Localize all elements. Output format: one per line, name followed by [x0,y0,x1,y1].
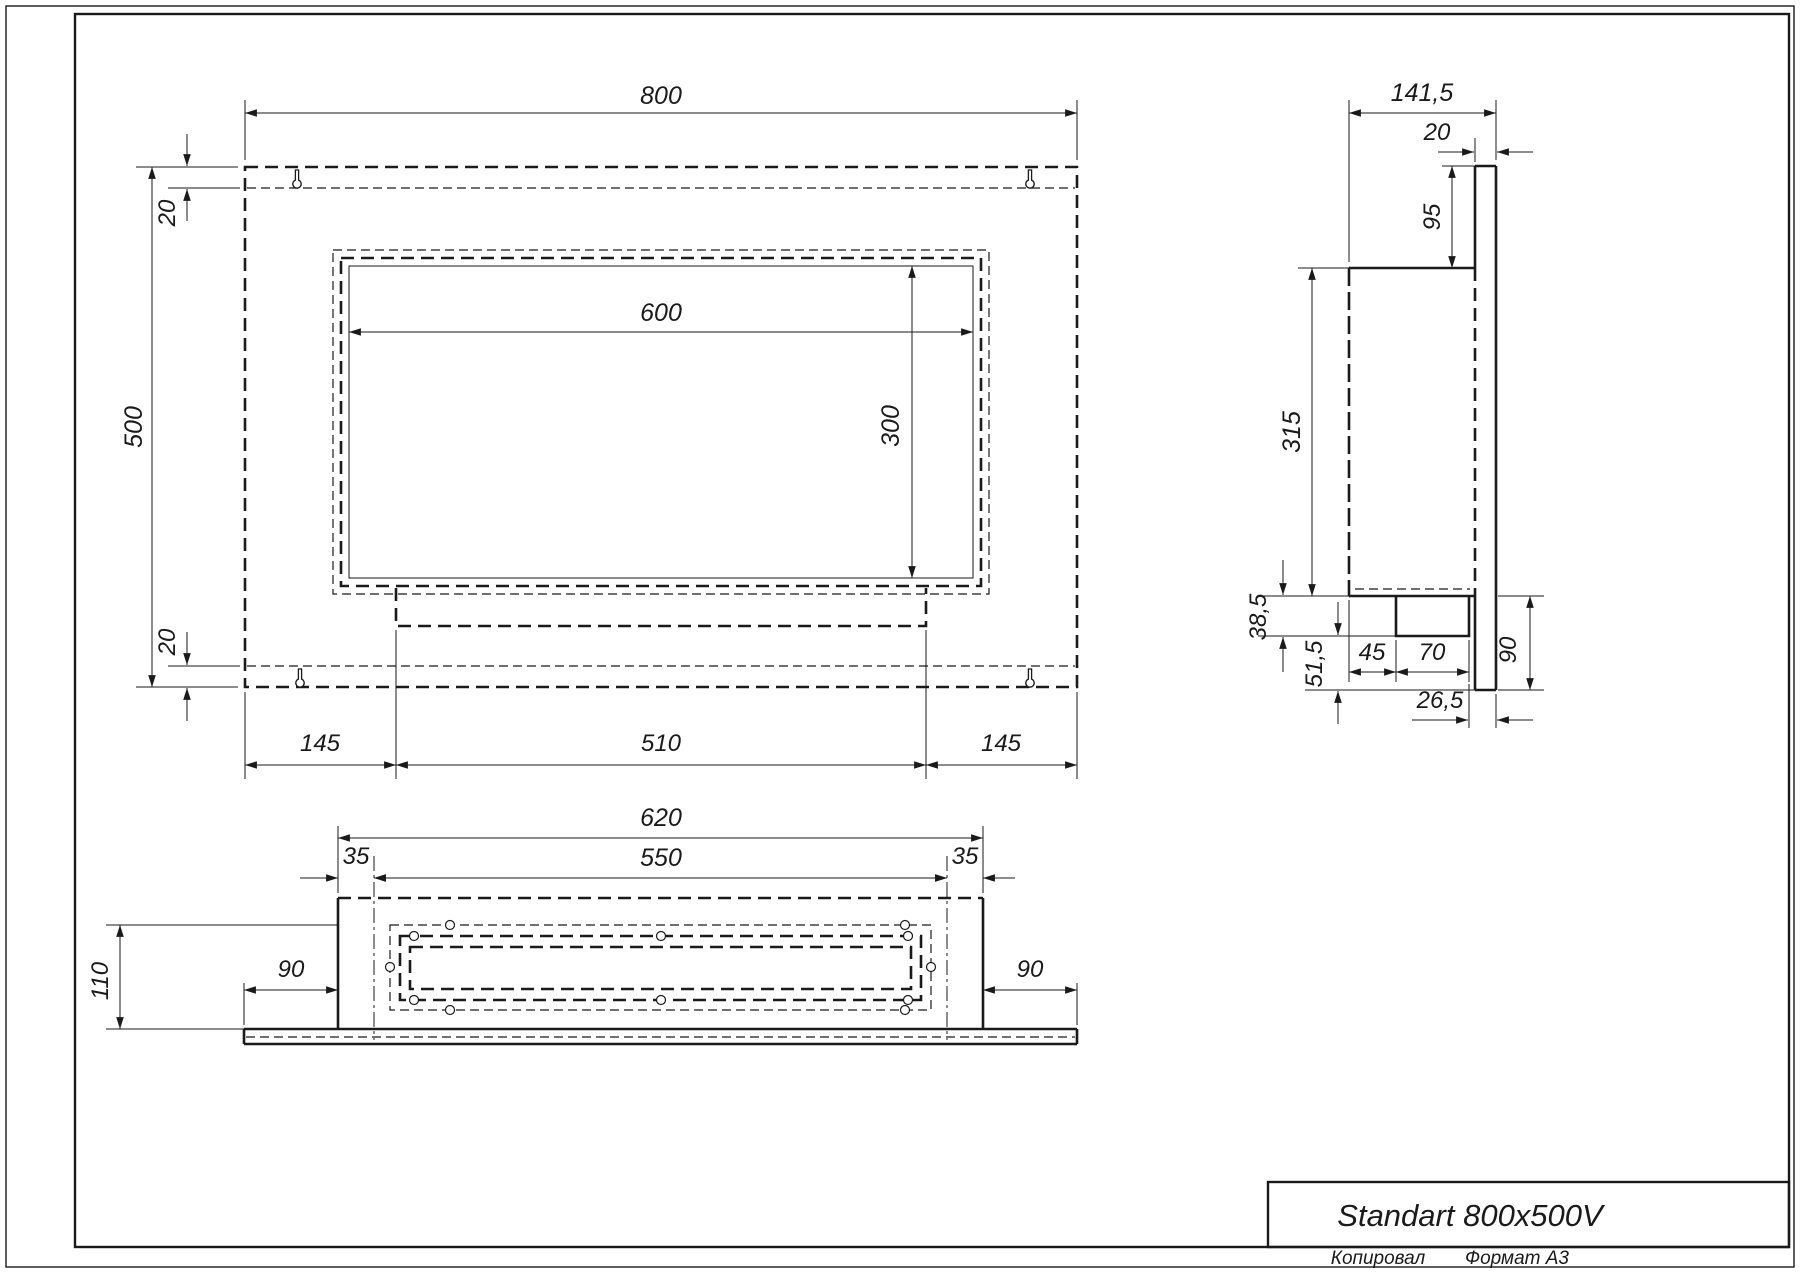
dim-label-90-right: 90 [1017,956,1044,983]
dim-bottom-wing-right: 90 [983,956,1077,1025]
keyhole-slot-icon [1026,170,1034,188]
dim-side-back-gap: 26,5 [1412,684,1533,728]
keyhole-slot-icon [1026,669,1034,687]
dim-front-top-flange: 20 [154,134,240,227]
dim-label-110: 110 [87,961,114,1000]
dim-label-20-top: 20 [154,199,181,227]
dim-label-38-5: 38,5 [1245,593,1272,640]
dim-bottom-inner-width: 550 35 35 [300,843,1015,878]
dim-side-plate-below: 90 [1495,596,1544,690]
bottom-wall-plate [244,1029,1077,1044]
dim-label-315: 315 [1278,411,1306,453]
sheet-border [6,6,1794,1267]
side-chamber-box [1349,268,1475,596]
dim-label-600: 600 [640,299,682,327]
front-outer-panel [245,167,1077,687]
dim-label-70: 70 [1419,639,1446,666]
dim-front-width: 800 [245,82,1077,160]
dim-label-550: 550 [640,844,682,872]
dim-label-620: 620 [640,804,682,832]
dim-label-95: 95 [1419,203,1446,230]
dim-label-45: 45 [1359,639,1386,666]
dim-bottom-wing-left: 90 [244,956,338,1025]
dim-label-141-5: 141,5 [1391,79,1454,107]
dim-label-510: 510 [641,730,682,757]
dim-label-90-left: 90 [278,956,305,983]
drawing-frame [75,14,1789,1247]
dim-label-300: 300 [877,405,905,447]
side-view: 141,5 20 95 315 38,5 [1245,79,1544,728]
dim-label-35-right: 35 [952,843,979,870]
sheet-footer: Копировал Формат А3 [1331,1248,1570,1269]
dim-label-26-5: 26,5 [1416,687,1464,714]
cad-canvas: 800 500 20 20 600 [0,0,1800,1273]
keyhole-slot-icon [293,170,301,188]
front-view: 800 500 20 20 600 [120,82,1077,779]
bottom-tray-outline-inner [410,947,911,989]
dim-label-plate-20: 20 [1423,119,1451,146]
keyhole-slot-icon [296,669,304,687]
dim-label-500: 500 [120,406,148,448]
dim-side-top-offset: 95 [1419,166,1475,268]
bottom-tray-outline-outer [400,936,921,1000]
dim-front-bottom-flange: 20 [154,628,240,721]
side-wall-plate [1475,166,1496,690]
title-block: Standart 800x500V [1268,1182,1789,1247]
dim-label-145-right: 145 [981,730,1022,757]
copied-label: Копировал [1331,1248,1426,1269]
dim-opening-height: 300 [877,266,912,578]
dim-label-35-left: 35 [343,843,370,870]
dim-front-bottom-split: 145 510 145 [245,630,1077,779]
dim-opening-width: 600 [349,299,973,332]
bottom-view: 620 550 35 35 110 90 [87,804,1077,1044]
dim-label-51-5: 51,5 [1301,640,1328,687]
dim-label-800: 800 [640,82,682,110]
dim-side-chamber-height: 315 [1262,268,1349,596]
dim-side-plate-thickness: 20 [1423,119,1533,162]
format-label: Формат А3 [1465,1248,1569,1269]
dim-side-tray-position: 45 70 [1349,600,1469,682]
product-title: Standart 800x500V [1337,1198,1606,1233]
dim-front-height: 500 [120,167,238,687]
dim-label-90-side: 90 [1495,636,1522,663]
dim-label-145-left: 145 [300,730,341,757]
dim-label-20-bottom: 20 [154,628,181,656]
sheet-edge [6,6,1794,1267]
drawing-sheet: 800 500 20 20 600 [0,0,1800,1273]
side-burner-tray [1396,596,1469,636]
